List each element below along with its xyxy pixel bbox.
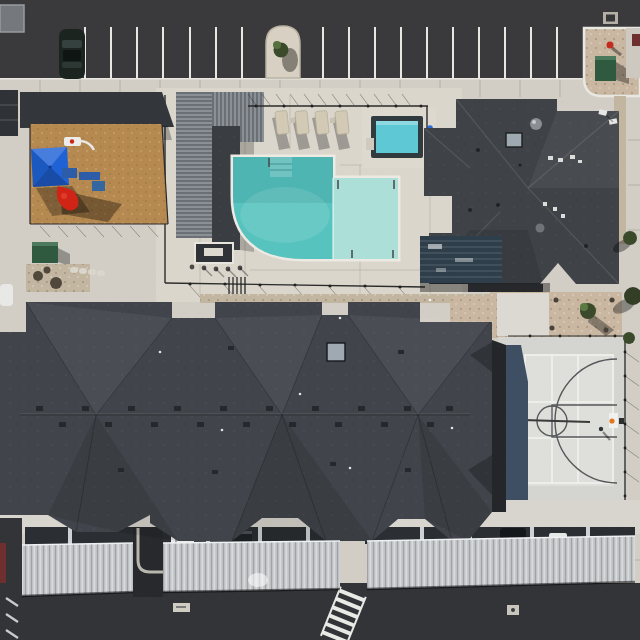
aerial-photo (0, 0, 640, 640)
photo-grain (0, 0, 640, 640)
aerial-photo-canvas (0, 0, 640, 640)
